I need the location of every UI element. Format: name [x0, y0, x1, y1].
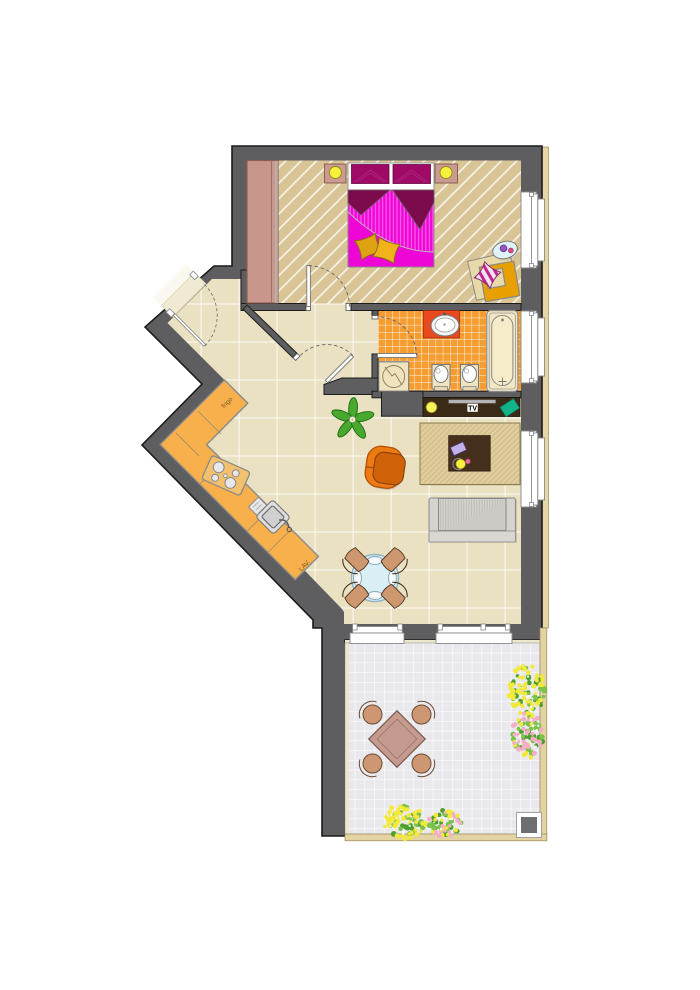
- svg-text:TV: TV: [468, 406, 477, 413]
